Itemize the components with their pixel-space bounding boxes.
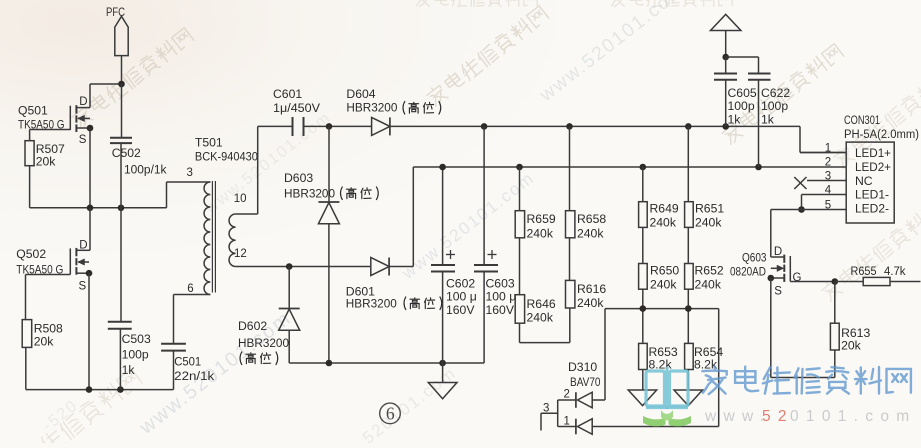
svg-text:Q501: Q501 (18, 104, 48, 118)
svg-text:NC: NC (855, 174, 873, 188)
svg-text:0101.com: 0101.com (790, 408, 916, 425)
svg-text:10: 10 (234, 193, 247, 205)
svg-text:R651: R651 (695, 202, 724, 216)
svg-text:240k: 240k (695, 277, 722, 291)
svg-text:3: 3 (543, 403, 549, 415)
svg-text:240k: 240k (527, 226, 554, 240)
svg-text:1k: 1k (122, 363, 136, 377)
svg-text:240k: 240k (577, 226, 604, 240)
svg-text:BAV70: BAV70 (570, 375, 601, 389)
svg-text:C603: C603 (486, 276, 515, 290)
svg-text:D: D (79, 96, 87, 108)
svg-text:1k: 1k (728, 113, 742, 127)
svg-text:S: S (79, 280, 87, 292)
svg-text:S: S (774, 285, 782, 297)
svg-text:240k: 240k (695, 216, 722, 230)
svg-text:C501: C501 (174, 354, 201, 368)
svg-text:R650: R650 (650, 264, 679, 278)
svg-text:R508: R508 (34, 321, 63, 335)
svg-text:CON301: CON301 (844, 113, 880, 127)
svg-text:12: 12 (234, 248, 247, 260)
svg-text:Q603: Q603 (742, 250, 767, 264)
svg-text:100 μ: 100 μ (446, 290, 477, 304)
svg-text:S: S (79, 134, 87, 146)
svg-text:D603: D603 (284, 171, 313, 185)
svg-text:R655: R655 (851, 264, 877, 278)
svg-text:3: 3 (187, 167, 193, 179)
svg-text:5: 5 (825, 199, 831, 211)
svg-text:PH-5A(2.0mm): PH-5A(2.0mm) (844, 127, 919, 141)
svg-text:240k: 240k (650, 277, 677, 291)
svg-text:2: 2 (825, 156, 831, 168)
svg-text:0820AD: 0820AD (730, 264, 766, 278)
svg-text:HBR3200: HBR3200 (346, 296, 397, 310)
svg-text:160V: 160V (486, 303, 515, 317)
svg-text:20k: 20k (841, 339, 862, 353)
svg-text:4: 4 (825, 184, 832, 196)
svg-text:4.7k: 4.7k (884, 264, 906, 278)
svg-text:HBR3200: HBR3200 (238, 336, 289, 350)
svg-text:100p: 100p (122, 347, 149, 361)
svg-text:1k: 1k (761, 113, 775, 127)
svg-text:R652: R652 (695, 264, 724, 278)
svg-text:C503: C503 (122, 332, 151, 346)
svg-text:D: D (774, 246, 782, 258)
svg-text:1: 1 (825, 142, 831, 154)
svg-text:C605: C605 (728, 86, 757, 100)
svg-text:C602: C602 (446, 276, 475, 290)
svg-text:6: 6 (187, 283, 193, 295)
svg-text:HBR3200: HBR3200 (346, 101, 397, 115)
svg-text:160V: 160V (446, 303, 475, 317)
svg-text:R659: R659 (527, 212, 556, 226)
svg-text:2: 2 (564, 389, 570, 401)
svg-text:D602: D602 (238, 319, 267, 333)
svg-text:LED2-: LED2- (855, 202, 889, 216)
svg-text:D: D (79, 240, 87, 252)
svg-text:C622: C622 (761, 86, 790, 100)
svg-text:240k: 240k (577, 296, 604, 310)
svg-text:TK5A50 G: TK5A50 G (16, 263, 63, 277)
svg-text:Q502: Q502 (16, 247, 46, 261)
svg-text:G: G (793, 272, 802, 284)
svg-text:C601: C601 (273, 87, 302, 101)
svg-text:22n/1k: 22n/1k (174, 369, 215, 383)
svg-text:100p: 100p (761, 99, 788, 113)
svg-text:R646: R646 (527, 297, 556, 311)
svg-text:100p/1k: 100p/1k (124, 162, 167, 176)
svg-text:LED2+: LED2+ (855, 160, 891, 174)
svg-text:8.2k: 8.2k (649, 357, 673, 371)
svg-text:240k: 240k (527, 310, 554, 324)
svg-text:240k: 240k (650, 216, 677, 230)
svg-text:100 μ: 100 μ (486, 290, 517, 304)
svg-text:20k: 20k (36, 155, 57, 169)
svg-text:C502: C502 (112, 146, 141, 160)
svg-text:D310: D310 (568, 360, 597, 374)
svg-text:3: 3 (825, 170, 831, 182)
svg-text:1: 1 (564, 416, 570, 428)
svg-text:R616: R616 (577, 282, 606, 296)
svg-text:R649: R649 (650, 202, 679, 216)
svg-text:T501: T501 (195, 135, 223, 149)
svg-text:LED1-: LED1- (855, 188, 889, 202)
svg-text:100p: 100p (728, 99, 755, 113)
svg-text:BCK-940430: BCK-940430 (195, 149, 258, 163)
svg-text:TK5A50 G: TK5A50 G (18, 117, 65, 131)
svg-text:D604: D604 (346, 87, 375, 101)
svg-text:6: 6 (386, 404, 395, 424)
svg-text:LED1+: LED1+ (855, 146, 891, 160)
svg-text:HBR3200: HBR3200 (284, 187, 335, 201)
svg-text:20k: 20k (34, 334, 55, 348)
svg-text:1μ/450V: 1μ/450V (273, 101, 321, 115)
svg-text:R658: R658 (577, 212, 606, 226)
